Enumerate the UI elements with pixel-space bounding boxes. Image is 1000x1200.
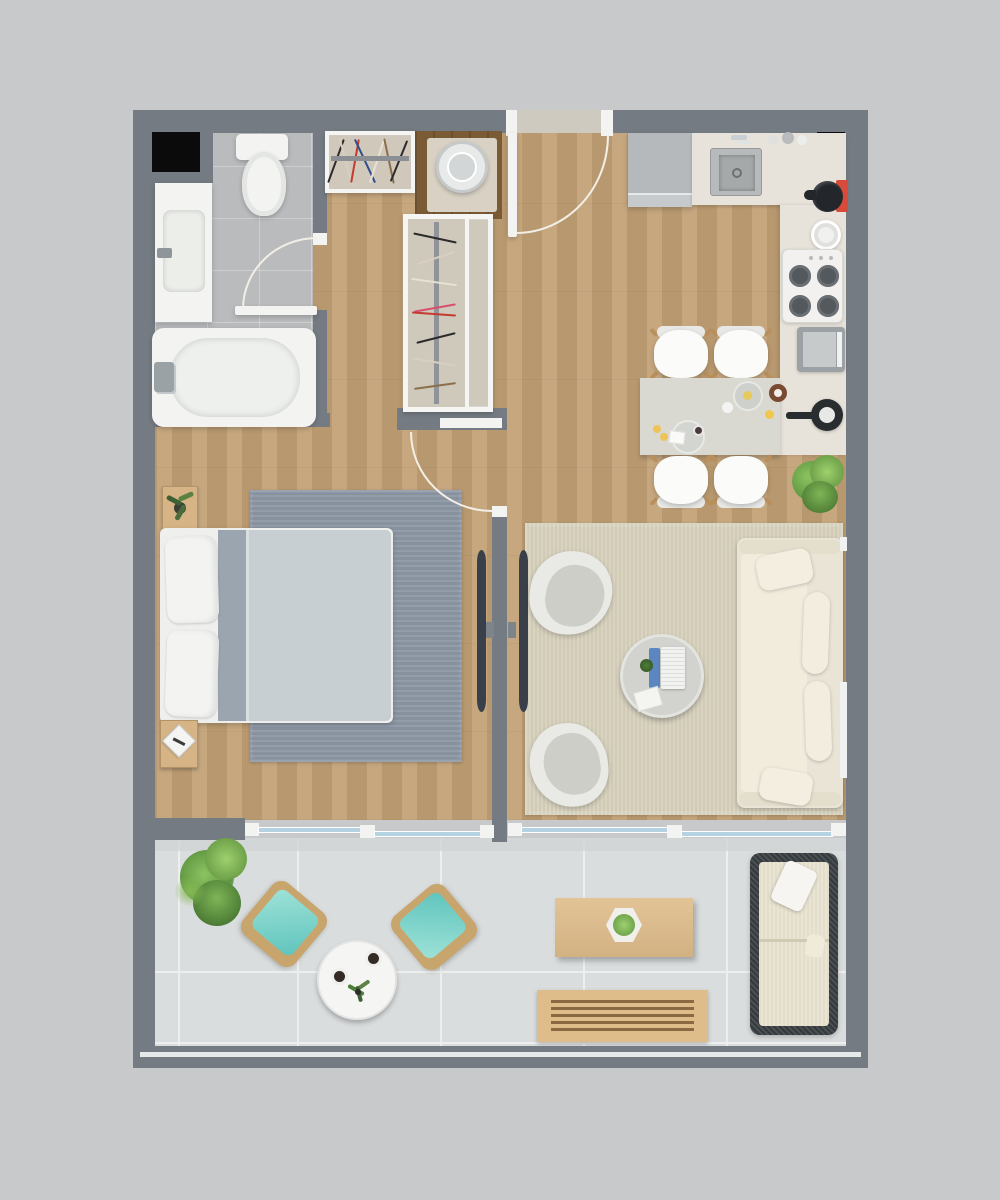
chair-seat bbox=[654, 456, 708, 504]
dining-chair-1 bbox=[654, 330, 708, 378]
dining-chair-3 bbox=[654, 456, 708, 504]
slider-glass-3 bbox=[521, 827, 669, 833]
bathtub-basin bbox=[170, 338, 300, 417]
kettle-spout bbox=[804, 190, 816, 200]
laptop-keyboard bbox=[661, 647, 685, 689]
sofa-back-cushion-1 bbox=[802, 592, 831, 675]
slider-bracket-4 bbox=[508, 823, 522, 836]
cooktop bbox=[782, 249, 843, 323]
burner-2 bbox=[817, 265, 839, 287]
slider-glass-1 bbox=[258, 827, 362, 833]
table-plant-sprig bbox=[345, 978, 373, 1006]
wardrobe-rail bbox=[331, 156, 409, 161]
kitchen-faucet bbox=[731, 135, 747, 140]
balcony-wall-stub bbox=[133, 818, 245, 840]
vanity-faucet bbox=[157, 248, 172, 258]
armchair-1 bbox=[530, 551, 612, 635]
toilet-bowl bbox=[242, 152, 286, 216]
entry-threshold bbox=[515, 110, 603, 133]
cooktop-knob-3 bbox=[829, 256, 833, 260]
coffee-table bbox=[620, 634, 704, 718]
lemon-2 bbox=[653, 425, 661, 433]
sink-drain bbox=[732, 168, 742, 178]
armchair-2 bbox=[530, 723, 608, 807]
slider-bracket-3 bbox=[480, 825, 494, 838]
kitchen-sink bbox=[710, 148, 762, 196]
slider-glass-4 bbox=[681, 831, 833, 837]
spice-jar-2 bbox=[782, 132, 794, 144]
oven-handle bbox=[837, 332, 842, 367]
bed-blanket bbox=[218, 530, 246, 721]
kettle bbox=[812, 181, 843, 212]
right-wall bbox=[846, 110, 868, 1068]
chair-seat bbox=[714, 456, 768, 504]
burner-4 bbox=[817, 295, 839, 317]
cooktop-knob-2 bbox=[819, 256, 823, 260]
left-wall bbox=[133, 110, 155, 1068]
bench-slats bbox=[551, 997, 694, 1035]
cooktop-knob-1 bbox=[809, 256, 813, 260]
bath-service-shaft bbox=[152, 132, 200, 172]
frying-pan-center bbox=[819, 407, 835, 423]
slider-bracket-6 bbox=[831, 823, 846, 836]
sofa-seat bbox=[741, 554, 807, 792]
bedroom-tv-mount bbox=[486, 622, 494, 638]
slider-bracket-1 bbox=[245, 823, 259, 836]
spice-jar-3 bbox=[797, 135, 807, 145]
living-tv bbox=[519, 550, 528, 712]
bedroom-living-partition bbox=[492, 517, 507, 842]
chair-seat bbox=[654, 330, 708, 378]
burner-1 bbox=[789, 265, 811, 287]
bed-pillow-1 bbox=[164, 535, 219, 624]
counter-plate bbox=[811, 220, 841, 250]
entry-wardrobe bbox=[325, 131, 415, 193]
lemon-3 bbox=[660, 433, 668, 441]
burner-3 bbox=[789, 295, 811, 317]
nightstand-plant bbox=[166, 492, 194, 522]
top-wall bbox=[133, 110, 865, 133]
refrigerator bbox=[628, 133, 692, 207]
window-sill-1 bbox=[840, 537, 847, 551]
hall-wardrobe bbox=[403, 214, 493, 412]
slider-glass-2 bbox=[374, 831, 482, 837]
bathtub-faucet bbox=[154, 362, 174, 392]
chair-seat bbox=[714, 330, 768, 378]
kitchen-floor-plant bbox=[788, 455, 848, 515]
table-plant bbox=[640, 659, 653, 672]
table-book bbox=[633, 686, 664, 712]
oven-window bbox=[803, 332, 836, 367]
lemon-1 bbox=[765, 410, 774, 419]
hall-wardrobe-shelves bbox=[469, 219, 488, 407]
washing-machine-lid bbox=[447, 152, 477, 182]
refrigerator-door bbox=[628, 193, 692, 207]
frying-pan-handle bbox=[786, 412, 814, 419]
sofa-back-cushion-2 bbox=[804, 681, 833, 762]
spice-jar-1 bbox=[768, 135, 778, 145]
dark-cup bbox=[693, 425, 704, 436]
dining-chair-2 bbox=[714, 330, 768, 378]
window-sill-2 bbox=[840, 682, 847, 778]
napkin-box bbox=[668, 430, 686, 445]
plate-food bbox=[743, 391, 752, 400]
oven bbox=[797, 327, 845, 372]
coffee-cup-inner bbox=[774, 389, 782, 397]
bedroom-door-threshold bbox=[440, 418, 502, 428]
bed-duvet bbox=[246, 530, 391, 721]
slider-bracket-2 bbox=[360, 825, 375, 838]
balcony-round-table bbox=[317, 940, 397, 1020]
dining-chair-4 bbox=[714, 456, 768, 504]
frying-pan bbox=[811, 399, 843, 431]
railing-handrail bbox=[140, 1052, 861, 1057]
balcony-bench bbox=[537, 990, 708, 1042]
bedroom-tv bbox=[477, 550, 486, 712]
slider-bracket-5 bbox=[667, 825, 682, 838]
entry-jamb-right bbox=[601, 110, 613, 136]
sofa bbox=[737, 538, 843, 808]
small-cup bbox=[722, 402, 733, 413]
bed-pillow-2 bbox=[164, 629, 219, 718]
floor-plan-render bbox=[0, 0, 1000, 1200]
outdoor-sofa bbox=[750, 853, 838, 1035]
living-tv-mount bbox=[508, 622, 516, 638]
balcony-railing bbox=[133, 1046, 868, 1068]
espresso-cup-2 bbox=[365, 950, 382, 967]
